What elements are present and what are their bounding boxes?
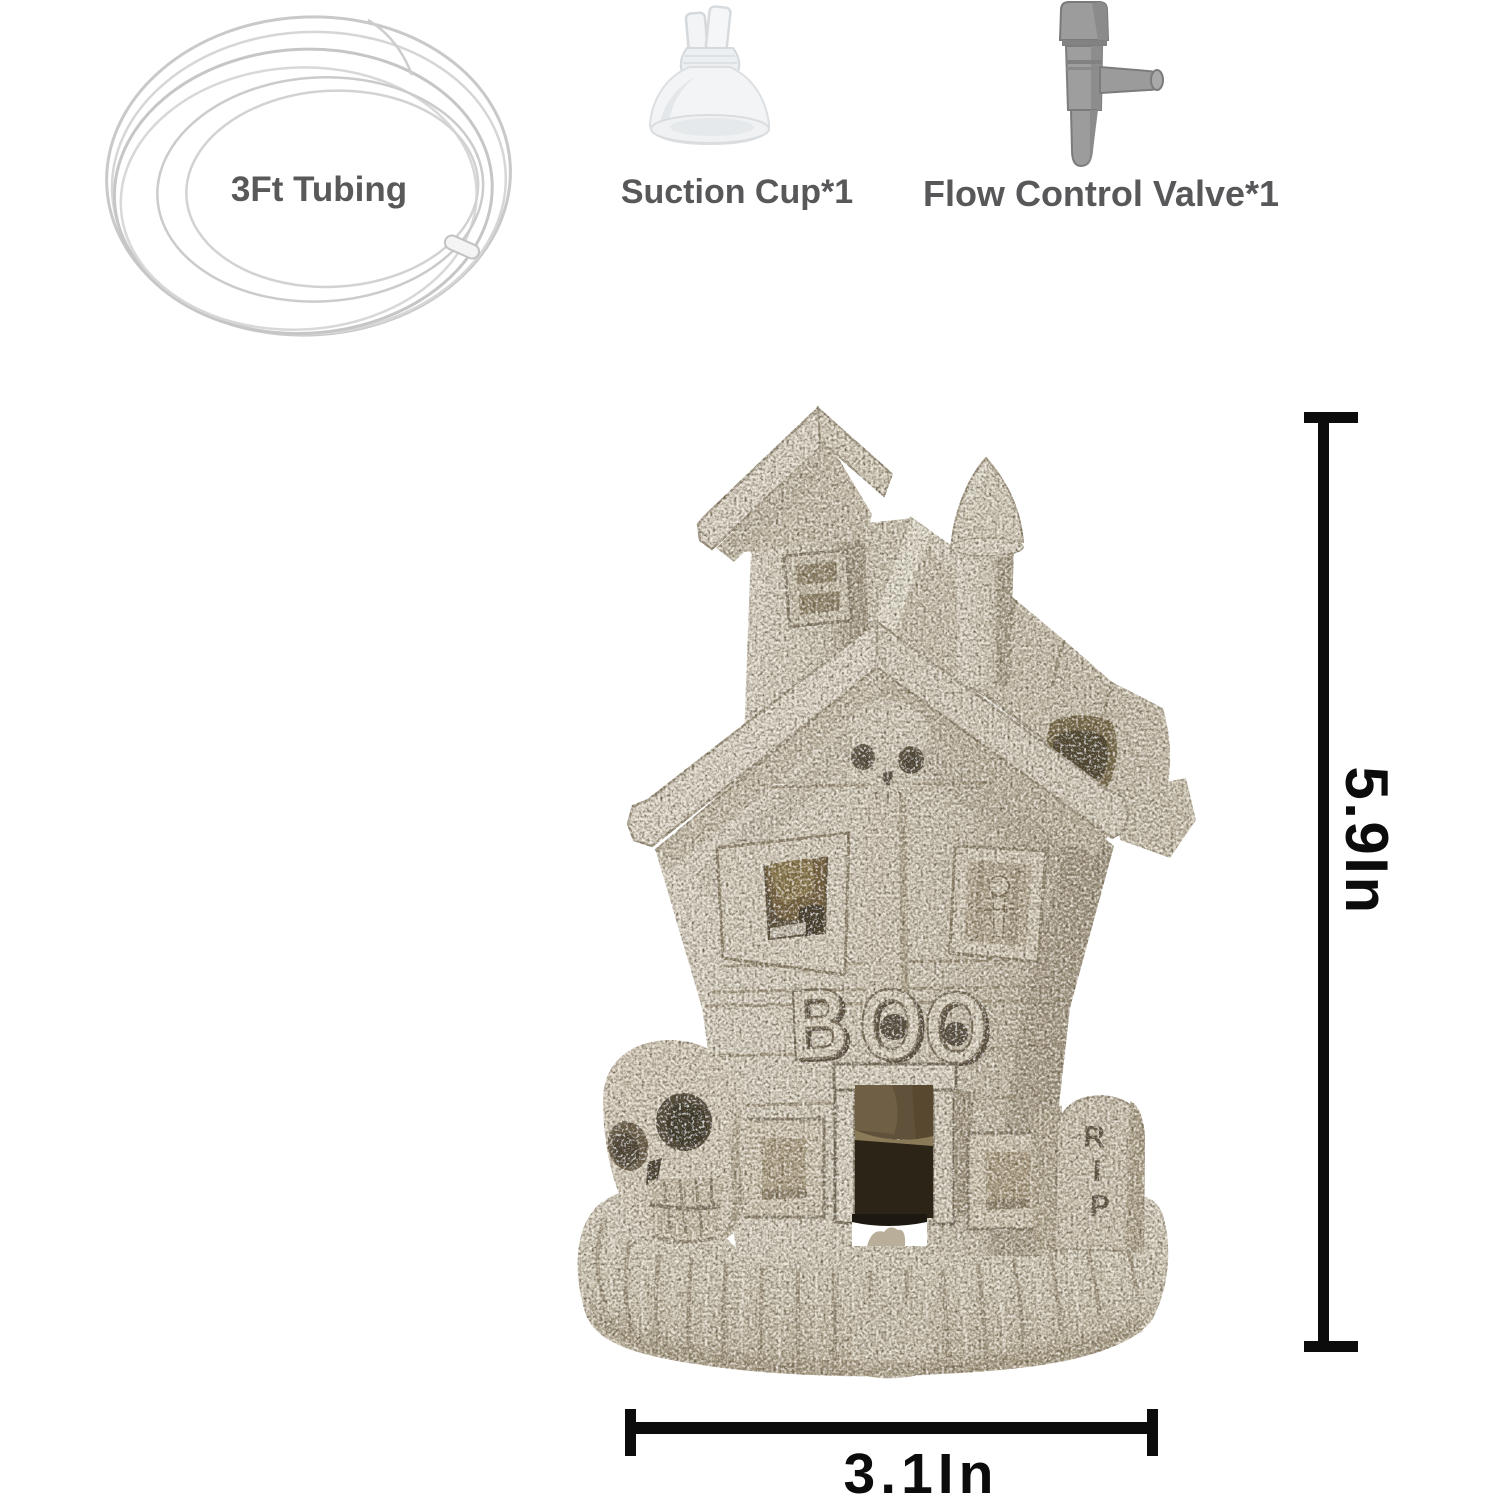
svg-text:Suction Cup*1: Suction Cup*1 [621, 173, 853, 211]
svg-text:5.9In: 5.9In [1333, 766, 1400, 915]
svg-text:I: I [1092, 1155, 1101, 1188]
svg-text:P: P [1089, 1190, 1110, 1224]
svg-text:3.1In: 3.1In [844, 1442, 999, 1497]
svg-text:3Ft Tubing: 3Ft Tubing [231, 170, 407, 209]
svg-text:Flow Control Valve*1: Flow Control Valve*1 [923, 173, 1279, 214]
svg-text:R: R [1083, 1120, 1106, 1154]
